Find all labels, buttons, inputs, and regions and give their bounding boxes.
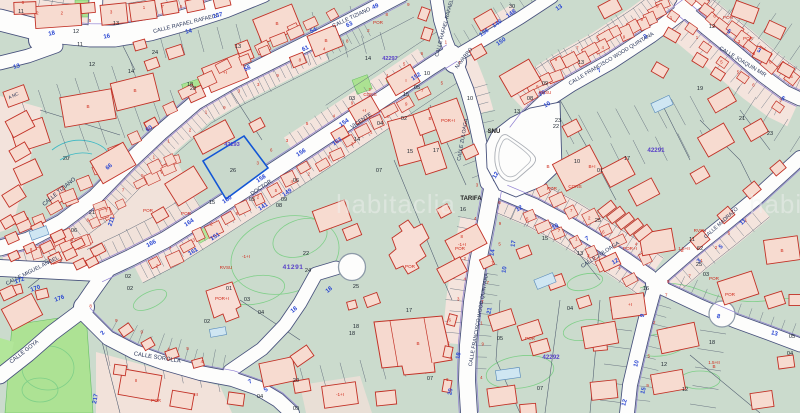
svg-text:I: I <box>405 78 406 83</box>
svg-text:RVSU: RVSU <box>539 90 552 95</box>
svg-text:10: 10 <box>467 96 473 102</box>
svg-text:CONS: CONS <box>363 92 376 97</box>
svg-text:20: 20 <box>293 378 299 384</box>
svg-text:13: 13 <box>235 44 241 50</box>
svg-text:TARIFA: TARIFA <box>460 196 482 202</box>
svg-text:05: 05 <box>249 197 255 203</box>
svg-text:06: 06 <box>71 228 77 234</box>
svg-text:III: III <box>194 392 198 397</box>
svg-text:28: 28 <box>190 86 196 92</box>
svg-text:15: 15 <box>403 92 409 98</box>
svg-text:-1+I: -1+I <box>592 256 600 261</box>
svg-text:08: 08 <box>276 203 282 209</box>
svg-text:14: 14 <box>354 137 360 143</box>
svg-text:30: 30 <box>509 4 515 10</box>
svg-text:42293: 42293 <box>224 142 240 148</box>
svg-text:B: B <box>416 341 419 346</box>
svg-text:11: 11 <box>18 9 24 15</box>
svg-text:62: 62 <box>697 246 703 252</box>
svg-text:17: 17 <box>624 156 630 162</box>
svg-text:16: 16 <box>643 286 649 292</box>
svg-text:03: 03 <box>703 272 709 278</box>
svg-text:23: 23 <box>767 131 773 137</box>
svg-text:05: 05 <box>789 334 795 340</box>
svg-text:25: 25 <box>353 284 359 290</box>
svg-text:POR: POR <box>181 211 192 216</box>
svg-text:20: 20 <box>63 156 69 162</box>
svg-text:B: B <box>546 164 549 169</box>
svg-text:18: 18 <box>709 340 715 346</box>
svg-text:POR: POR <box>151 398 162 403</box>
svg-text:POR+I: POR+I <box>441 118 455 123</box>
svg-text:42292: 42292 <box>542 354 560 361</box>
svg-text:04: 04 <box>258 310 264 316</box>
svg-text:POR+I: POR+I <box>215 296 229 301</box>
svg-text:18: 18 <box>349 331 355 337</box>
svg-text:42297: 42297 <box>382 56 398 62</box>
svg-text:25: 25 <box>595 218 601 224</box>
svg-text:POR: POR <box>547 186 558 191</box>
svg-text:POR: POR <box>723 15 734 20</box>
svg-text:POR: POR <box>405 264 416 269</box>
svg-text:16: 16 <box>460 207 466 213</box>
svg-text:17: 17 <box>406 308 412 314</box>
svg-text:15: 15 <box>542 236 548 242</box>
svg-text:22: 22 <box>303 251 309 257</box>
svg-text:12: 12 <box>682 387 688 393</box>
svg-text:POR: POR <box>709 276 720 281</box>
svg-text:09: 09 <box>293 406 299 412</box>
svg-text:RVSU: RVSU <box>694 228 707 233</box>
svg-text:13: 13 <box>578 60 584 66</box>
svg-text:12: 12 <box>73 29 79 35</box>
svg-text:POR: POR <box>743 36 754 41</box>
svg-text:B: B <box>680 248 683 253</box>
svg-text:24: 24 <box>305 268 311 274</box>
svg-text:-1+I: -1+I <box>458 242 466 247</box>
svg-text:POR+I: POR+I <box>623 246 637 251</box>
svg-text:-1+I: -1+I <box>242 254 250 259</box>
svg-text:POR: POR <box>525 336 536 341</box>
svg-text:POR: POR <box>143 208 154 213</box>
svg-text:05: 05 <box>497 336 503 342</box>
svg-text:RVSU: RVSU <box>220 265 233 270</box>
svg-text:12: 12 <box>661 362 667 368</box>
svg-text:07: 07 <box>427 376 433 382</box>
svg-text:03: 03 <box>244 297 250 303</box>
svg-text:15: 15 <box>209 200 215 206</box>
svg-text:26: 26 <box>230 168 236 174</box>
svg-text:B: B <box>275 21 278 26</box>
svg-text:B: B <box>86 104 89 109</box>
svg-text:09: 09 <box>542 81 548 87</box>
svg-text:habitaclia: habitaclia <box>336 189 456 219</box>
svg-text:II: II <box>135 378 138 383</box>
svg-text:B: B <box>324 38 327 43</box>
svg-text:24: 24 <box>152 50 158 56</box>
svg-text:19: 19 <box>697 86 703 92</box>
svg-text:06: 06 <box>293 178 299 184</box>
svg-text:41291: 41291 <box>283 264 304 271</box>
svg-text:+I: +I <box>362 108 366 113</box>
svg-text:13: 13 <box>113 21 119 27</box>
svg-text:22: 22 <box>553 124 559 130</box>
svg-text:14: 14 <box>365 56 371 62</box>
svg-text:05: 05 <box>414 85 420 91</box>
svg-text:POR: POR <box>373 20 384 25</box>
svg-text:11: 11 <box>689 237 695 243</box>
svg-text:POR: POR <box>725 292 736 297</box>
svg-text:B: B <box>780 248 783 253</box>
svg-text:07: 07 <box>537 386 543 392</box>
svg-text:04: 04 <box>257 394 263 400</box>
svg-text:+I: +I <box>223 70 227 75</box>
svg-text:B: B <box>133 88 136 93</box>
svg-text:02: 02 <box>125 274 131 280</box>
svg-text:SNU: SNU <box>488 129 501 135</box>
svg-text:02: 02 <box>401 116 407 122</box>
svg-text:14: 14 <box>128 69 134 75</box>
svg-text:B: B <box>712 364 715 369</box>
svg-text:10: 10 <box>574 159 580 165</box>
svg-text:02: 02 <box>127 286 133 292</box>
svg-text:+I: +I <box>628 302 632 307</box>
svg-text:04: 04 <box>377 121 383 127</box>
svg-text:13: 13 <box>514 109 520 115</box>
svg-text:CONS: CONS <box>568 184 581 189</box>
svg-text:12: 12 <box>89 62 95 68</box>
svg-text:18: 18 <box>353 324 359 330</box>
svg-text:B: B <box>428 116 431 121</box>
svg-text:21: 21 <box>739 116 745 122</box>
svg-text:12: 12 <box>709 24 715 30</box>
svg-text:04: 04 <box>787 351 793 357</box>
svg-text:02: 02 <box>204 319 210 325</box>
svg-text:01: 01 <box>226 286 232 292</box>
svg-text:17: 17 <box>433 148 439 154</box>
svg-text:10: 10 <box>424 71 430 77</box>
svg-text:42291: 42291 <box>647 147 665 154</box>
svg-text:B+I: B+I <box>588 164 595 169</box>
svg-text:-1+I: -1+I <box>336 392 344 397</box>
svg-text:13: 13 <box>577 251 583 257</box>
svg-text:08: 08 <box>527 96 533 102</box>
svg-text:01: 01 <box>597 168 603 174</box>
svg-text:11: 11 <box>77 42 83 48</box>
svg-text:07: 07 <box>376 168 382 174</box>
svg-text:habitaclia: habitaclia <box>749 189 800 219</box>
svg-text:03: 03 <box>349 96 355 102</box>
svg-text:15: 15 <box>407 149 413 155</box>
svg-text:25: 25 <box>696 262 702 268</box>
svg-text:21: 21 <box>89 210 95 216</box>
svg-text:04: 04 <box>567 306 573 312</box>
